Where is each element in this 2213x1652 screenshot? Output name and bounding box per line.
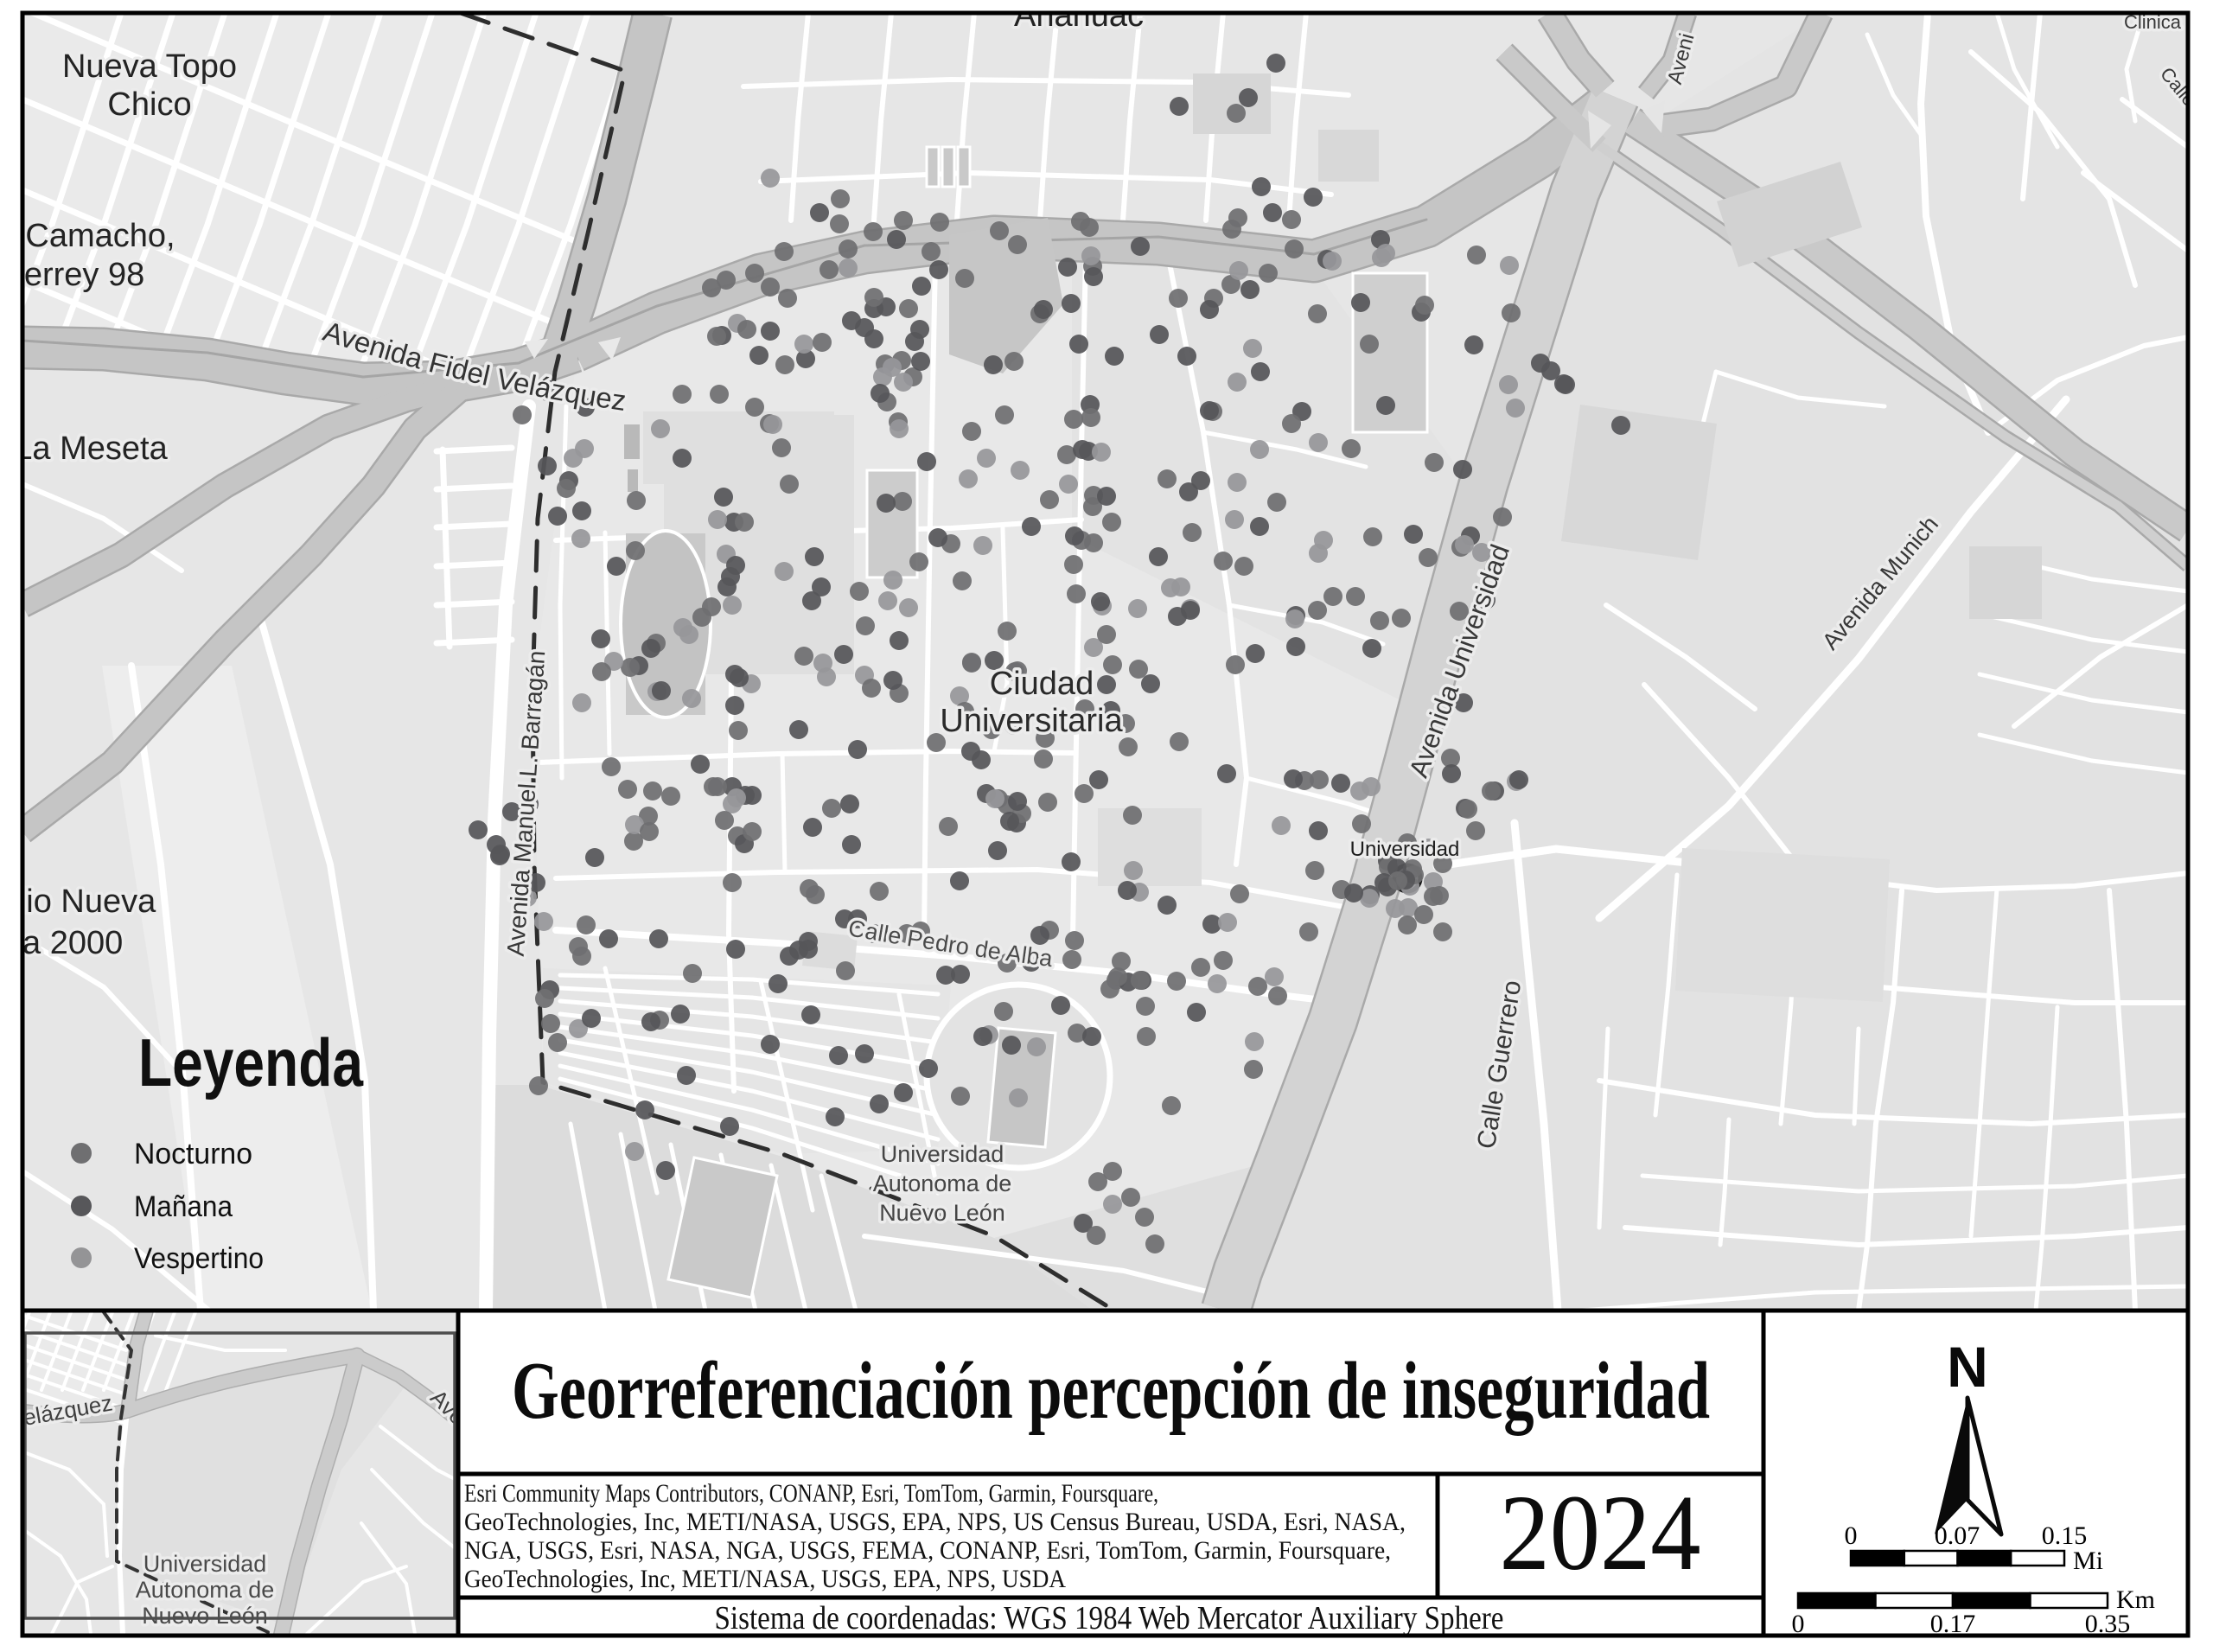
svg-text:2024: 2024 bbox=[1500, 1474, 1701, 1593]
svg-text:Vespertino: Vespertino bbox=[134, 1242, 264, 1275]
svg-text:Km: Km bbox=[2116, 1585, 2155, 1614]
svg-text:Mi: Mi bbox=[2073, 1547, 2103, 1575]
svg-text:Nueva Topo: Nueva Topo bbox=[62, 48, 237, 85]
svg-text:Autonoma de: Autonoma de bbox=[873, 1170, 1012, 1196]
svg-text:Nuevo León: Nuevo León bbox=[142, 1603, 268, 1629]
svg-text:Autonoma de: Autonoma de bbox=[136, 1577, 275, 1603]
svg-text:Chico: Chico bbox=[107, 86, 191, 123]
svg-text:Universidad: Universidad bbox=[143, 1551, 267, 1577]
svg-text:Esri Community Maps Contributo: Esri Community Maps Contributors, CONANP… bbox=[464, 1479, 1158, 1508]
svg-text:La Meseta: La Meseta bbox=[14, 431, 168, 467]
svg-text:Camacho,: Camacho, bbox=[25, 218, 175, 254]
svg-text:0.07: 0.07 bbox=[1935, 1521, 1980, 1550]
svg-text:Leyenda: Leyenda bbox=[138, 1024, 363, 1100]
svg-text:Universidad: Universidad bbox=[881, 1141, 1004, 1167]
svg-text:Nocturno: Nocturno bbox=[134, 1138, 252, 1170]
svg-text:Universitaria: Universitaria bbox=[940, 703, 1123, 739]
svg-text:Mañana: Mañana bbox=[134, 1190, 233, 1223]
svg-text:GeoTechnologies, Inc, METI/NAS: GeoTechnologies, Inc, METI/NASA, USGS, E… bbox=[464, 1508, 1406, 1536]
svg-text:Ciudad: Ciudad bbox=[990, 666, 1094, 702]
svg-text:NGA, USGS, Esri, NASA, NGA, US: NGA, USGS, Esri, NASA, NGA, USGS, FEMA, … bbox=[464, 1536, 1391, 1565]
svg-text:Sistema de coordenadas: WGS 19: Sistema de coordenadas: WGS 1984 Web Mer… bbox=[715, 1600, 1504, 1636]
svg-text:0: 0 bbox=[1845, 1521, 1858, 1550]
svg-text:Georreferenciación percepción: Georreferenciación percepción de insegur… bbox=[512, 1346, 1710, 1436]
svg-text:Nuevo León: Nuevo León bbox=[879, 1200, 1005, 1226]
svg-text:GeoTechnologies, Inc, METI/NAS: GeoTechnologies, Inc, METI/NASA, USGS, E… bbox=[464, 1565, 1066, 1593]
svg-text:Universidad: Universidad bbox=[1350, 838, 1460, 861]
svg-text:N: N bbox=[1947, 1335, 1988, 1399]
svg-text:herrey 98: herrey 98 bbox=[6, 257, 145, 293]
